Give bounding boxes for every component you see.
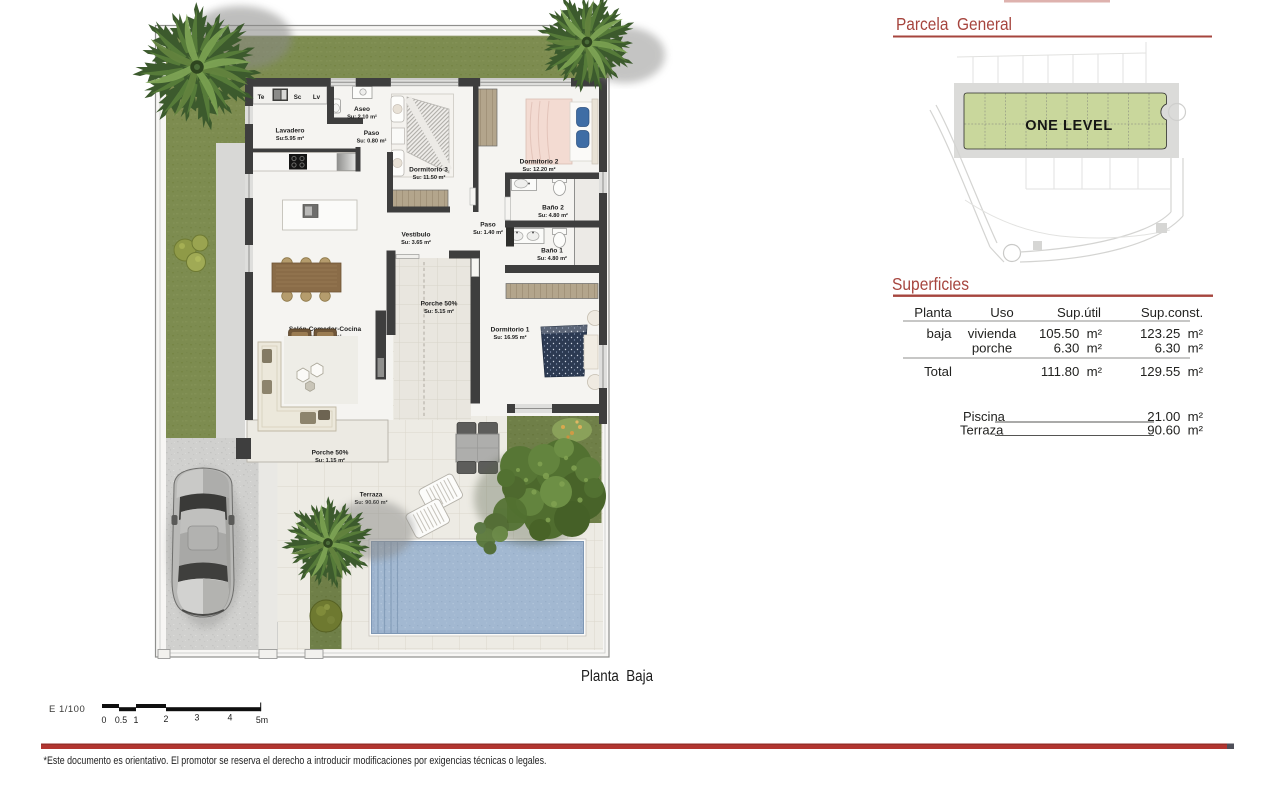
svg-text:3: 3 <box>195 713 200 723</box>
svg-text:Uso: Uso <box>990 305 1013 320</box>
svg-text:105.50 m²: 105.50 m² <box>1039 326 1103 341</box>
svg-text:Su: 5.15 m²: Su: 5.15 m² <box>424 308 454 315</box>
svg-text:111.80 m²: 111.80 m² <box>1041 364 1103 379</box>
svg-text:Total: Total <box>924 364 952 379</box>
svg-text:*Este documento es orientativo: *Este documento es orientativo. El promo… <box>44 755 547 767</box>
svg-text:Su: 12.20 m²: Su: 12.20 m² <box>523 166 556 173</box>
svg-text:1: 1 <box>134 715 139 725</box>
svg-text:Su: 3.65 m²: Su: 3.65 m² <box>401 239 431 246</box>
svg-text:Baño 1: Baño 1 <box>541 248 563 255</box>
svg-text:Planta Baja: Planta Baja <box>581 668 653 685</box>
svg-text:Porche 50%: Porche 50% <box>312 450 349 457</box>
svg-text:Su: 2.10 m²: Su: 2.10 m² <box>347 114 377 121</box>
svg-text:Terraza: Terraza <box>360 492 383 499</box>
svg-text:129.55 m²: 129.55 m² <box>1140 364 1204 379</box>
svg-text:Aseo: Aseo <box>354 106 370 113</box>
svg-text:baja: baja <box>927 326 953 341</box>
svg-text:90.60 m²: 90.60 m² <box>1147 423 1203 438</box>
svg-text:porche: porche <box>972 341 1012 356</box>
svg-text:6.30 m²: 6.30 m² <box>1054 341 1103 356</box>
svg-text:Su: 16.95 m²: Su: 16.95 m² <box>494 334 527 341</box>
svg-text:Superficies: Superficies <box>892 274 969 294</box>
svg-text:Sup.const.: Sup.const. <box>1141 305 1203 320</box>
svg-text:Su: 1.40 m²: Su: 1.40 m² <box>473 229 503 236</box>
svg-text:ONE LEVEL: ONE LEVEL <box>1025 118 1113 134</box>
svg-text:Lavadero: Lavadero <box>276 128 305 135</box>
svg-text:Dormitorio 3: Dormitorio 3 <box>409 167 448 174</box>
svg-text:Su: 0.80 m²: Su: 0.80 m² <box>357 138 387 145</box>
svg-text:Planta: Planta <box>914 305 952 320</box>
svg-text:5m: 5m <box>256 715 268 725</box>
svg-text:123.25 m²: 123.25 m² <box>1140 326 1204 341</box>
svg-text:vivienda: vivienda <box>968 326 1017 341</box>
svg-text:Su: 4.80 m²: Su: 4.80 m² <box>538 212 568 219</box>
svg-text:E 1/100: E 1/100 <box>49 704 85 715</box>
svg-text:Su: 1.15 m²: Su: 1.15 m² <box>315 457 345 464</box>
svg-text:Su: 4.80 m²: Su: 4.80 m² <box>537 255 567 262</box>
svg-text:Su:5.95 m²: Su:5.95 m² <box>276 135 304 142</box>
svg-text:Paso: Paso <box>480 222 496 229</box>
svg-text:Parcela General: Parcela General <box>896 14 1012 34</box>
svg-text:4: 4 <box>228 713 233 723</box>
svg-text:Su: 11.50 m²: Su: 11.50 m² <box>413 174 446 181</box>
svg-text:Sup.útil: Sup.útil <box>1057 305 1101 320</box>
svg-text:Baño 2: Baño 2 <box>542 205 564 212</box>
svg-text:Porche 50%: Porche 50% <box>421 301 458 308</box>
svg-text:0.5: 0.5 <box>115 715 127 725</box>
svg-text:6.30 m²: 6.30 m² <box>1155 341 1204 356</box>
svg-text:Dormitorio 2: Dormitorio 2 <box>520 159 559 166</box>
svg-text:Vestíbulo: Vestíbulo <box>402 232 431 239</box>
svg-text:Lv: Lv <box>313 94 321 101</box>
svg-text:2: 2 <box>164 714 169 724</box>
svg-text:Dormitorio 1: Dormitorio 1 <box>491 327 530 334</box>
svg-text:Te: Te <box>258 94 265 101</box>
svg-text:Paso: Paso <box>364 130 380 137</box>
svg-text:Sc: Sc <box>294 94 302 101</box>
svg-text:0: 0 <box>102 715 107 725</box>
